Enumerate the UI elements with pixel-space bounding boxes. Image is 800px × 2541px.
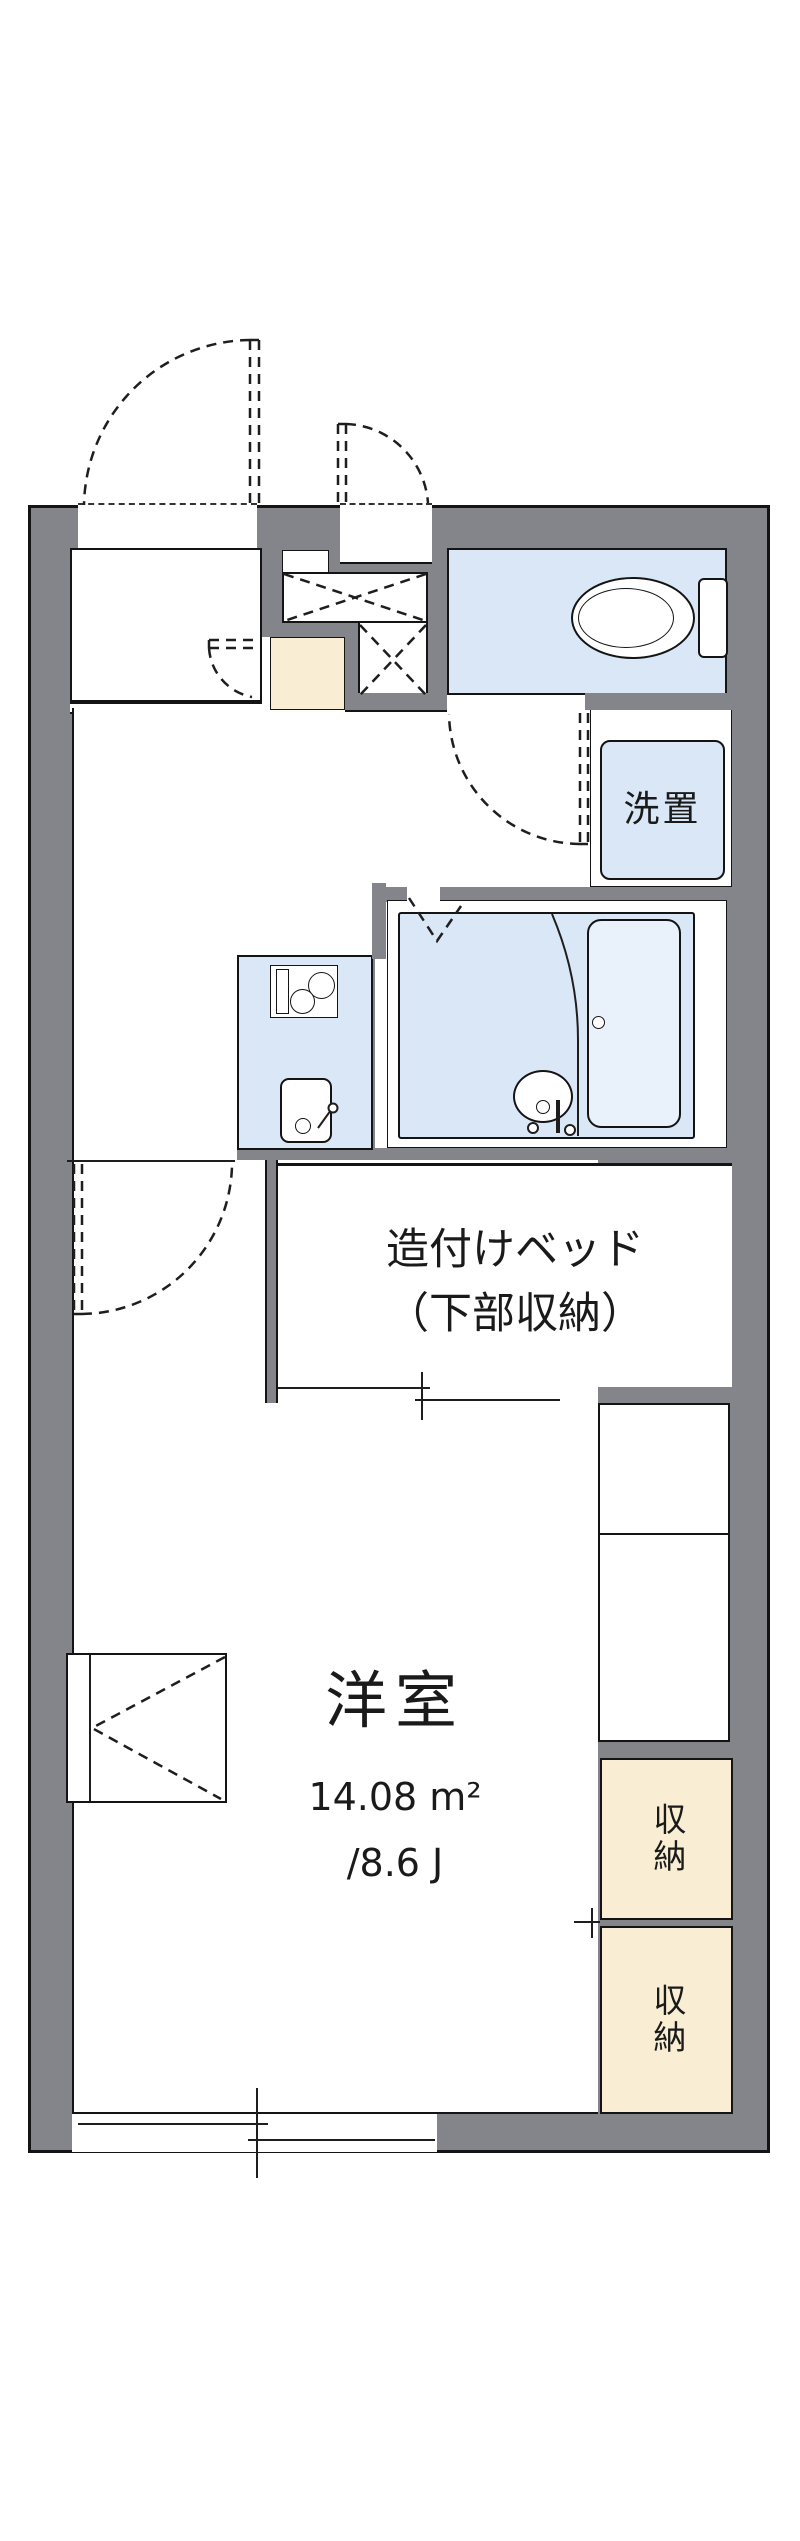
kitchen-faucet-head-icon (329, 1104, 338, 1113)
main-room-door-leaf (74, 1164, 82, 1314)
toilet-door-swing (449, 714, 580, 844)
entrance-door-leaf (250, 340, 259, 505)
shower-partition-line (552, 914, 578, 1136)
storage-tick (574, 1908, 600, 1938)
bed-threshold-lines (278, 1372, 560, 1420)
toilet-door-leaf (580, 713, 588, 844)
service-door-swing (346, 424, 428, 503)
service-door-leaf (338, 424, 346, 505)
kitchen-faucet-icon (318, 1110, 331, 1128)
basin-tap-icon (565, 1125, 575, 1135)
entrance-door-swing (84, 340, 250, 505)
genkan-door-swing (209, 648, 252, 697)
closet-x-mark (284, 574, 426, 621)
bottom-window-sashes (78, 2088, 435, 2178)
bay-window-mark (92, 1657, 225, 1799)
floorplan-lines (0, 0, 800, 2541)
basin-tap-icon (528, 1123, 538, 1133)
closet-x-mark (360, 625, 426, 695)
bathroom-door-mark (409, 898, 461, 941)
floor-plan: 洗置 造付けベッド （下部収納） 収納 収納 洋室 14.08 m² /8.6 … (0, 0, 800, 2541)
genkan-door-leaf (209, 640, 258, 648)
main-room-door-swing (82, 1166, 232, 1314)
